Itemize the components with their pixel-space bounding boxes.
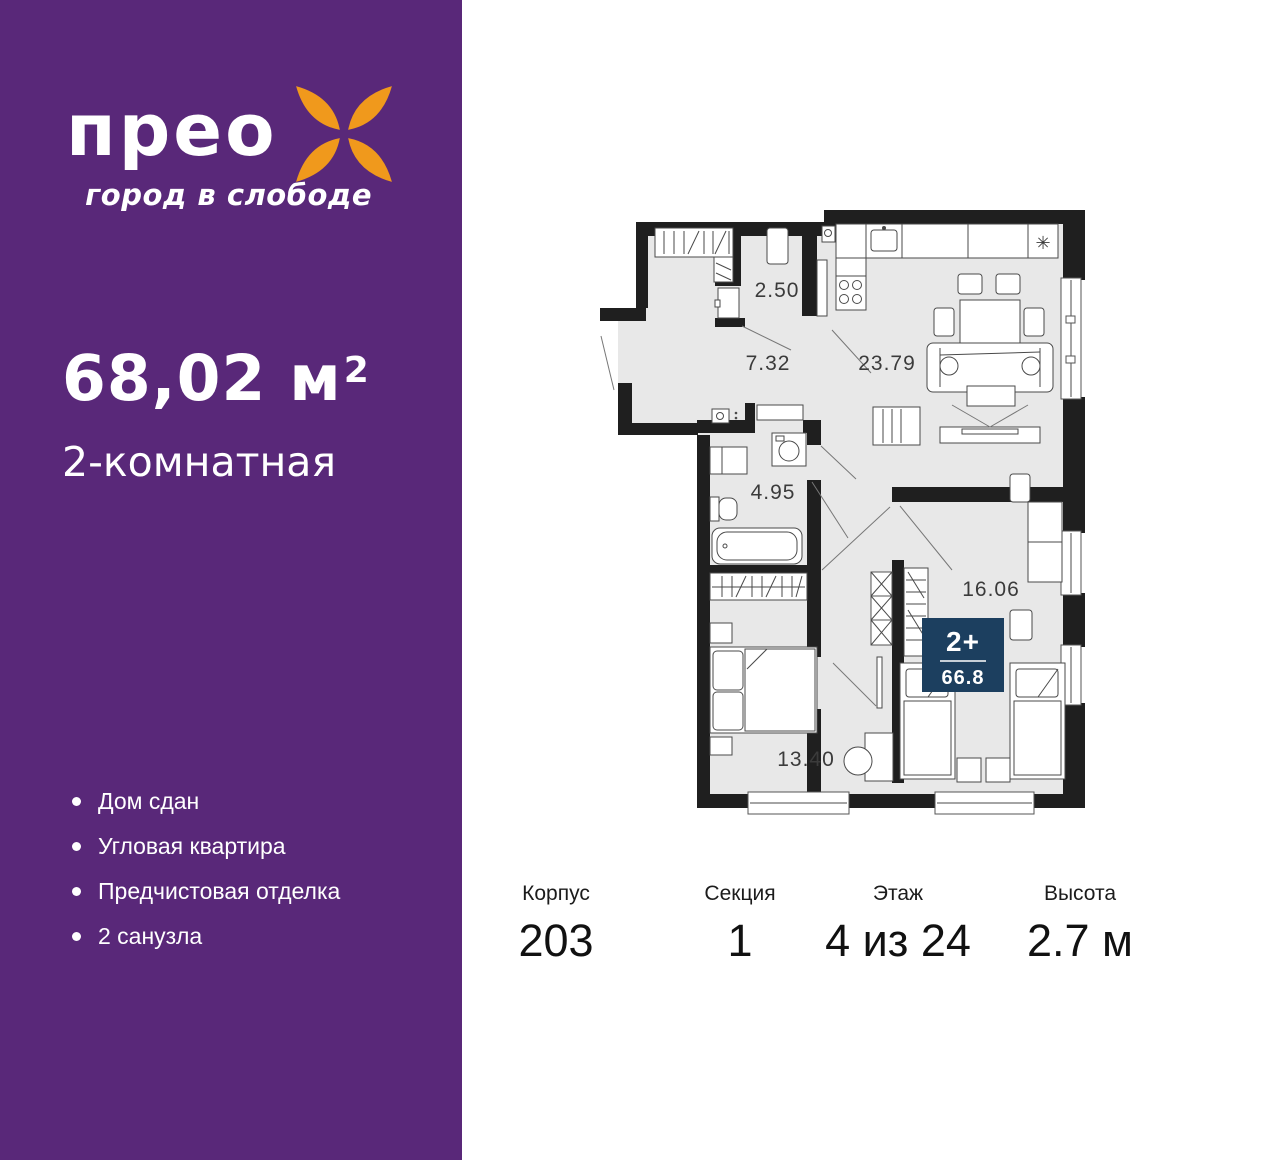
room-label-hallway: 7.32 [746,352,791,375]
detail-value: 2.7 м [1027,915,1133,967]
sidebar: прео город в слободе 68,02 м2 2-комнатна… [0,0,462,1160]
detail-label: Высота [1027,882,1133,906]
toilet [710,497,719,521]
bullet-icon [72,797,81,806]
kitchen-pocket-door [817,260,827,316]
pillow [1016,669,1058,697]
detail-value: 203 [518,915,593,967]
apartment-badge: 2+ 66.8 [922,618,1004,692]
room-label-closet: 2.50 [755,279,800,302]
badge-rooms: 2+ [946,626,980,657]
detail-label: Корпус [518,882,593,906]
detail-value: 1 [704,915,775,967]
detail-label: Этаж [825,882,971,906]
kitchen-counter [836,224,1058,258]
vanity-sink [710,447,747,474]
nightstand [986,758,1010,782]
dining-chair [958,274,982,294]
feature-item: Предчистовая отделка [72,869,340,914]
brand-tagline: город в слободе [66,178,372,212]
closet-door [718,288,739,318]
detail-section: Секция 1 [704,882,775,967]
detail-floor: Этаж 4 из 24 [825,882,971,967]
bullet-icon [72,887,81,896]
feature-list: Дом сдан Угловая квартира Предчистовая о… [72,779,340,959]
entry-door-swing [601,336,614,390]
stove [836,276,866,310]
area-superscript: 2 [344,350,370,391]
dining-chair [996,274,1020,294]
badge-area: 66.8 [942,667,985,689]
floorplan: ✳ [600,200,1100,820]
nightstand [710,737,732,755]
electric-panel-icon [712,409,729,423]
room-label-bathroom: 4.95 [751,481,796,504]
feature-item: 2 санузла [72,914,340,959]
pillow [713,651,743,690]
round-table [844,747,872,775]
desk-chair [1010,474,1030,502]
desk-chair [1010,610,1032,640]
detail-value: 4 из 24 [825,915,971,967]
dining-table [960,300,1020,343]
logo-flower-icon [294,84,394,184]
bathtub [712,528,802,564]
bullet-icon [72,932,81,941]
room-label-bedroom-left: 13.40 [777,748,835,771]
bullet-icon [72,842,81,851]
apartment-type: 2-комнатная [62,438,336,486]
apartment-area: 68,02 м2 [62,342,368,415]
detail-label: Секция [704,882,775,906]
pillow [713,692,743,730]
dining-chair [1024,308,1044,336]
listing-card: прео город в слободе 68,02 м2 2-комнатна… [0,0,1280,1160]
dining-chair [934,308,954,336]
detail-building: Корпус 203 [518,882,593,967]
bathroom-door [757,405,803,420]
door-leaf [877,657,882,708]
detail-height: Высота 2.7 м [1027,882,1133,967]
brand-name: прео [66,94,278,166]
sink [871,230,897,251]
coffee-table [967,386,1015,406]
room-label-kitchen: 23.79 [858,352,916,375]
feature-item: Дом сдан [72,779,340,824]
room-label-bedroom-right: 16.06 [962,578,1020,601]
fridge-asterisk-icon: ✳ [1035,233,1050,253]
bedroom-left-furniture [710,573,817,755]
nightstand [957,758,981,782]
feature-item: Угловая квартира [72,824,340,869]
nightstand [710,623,732,643]
shelf-unit [873,407,920,445]
